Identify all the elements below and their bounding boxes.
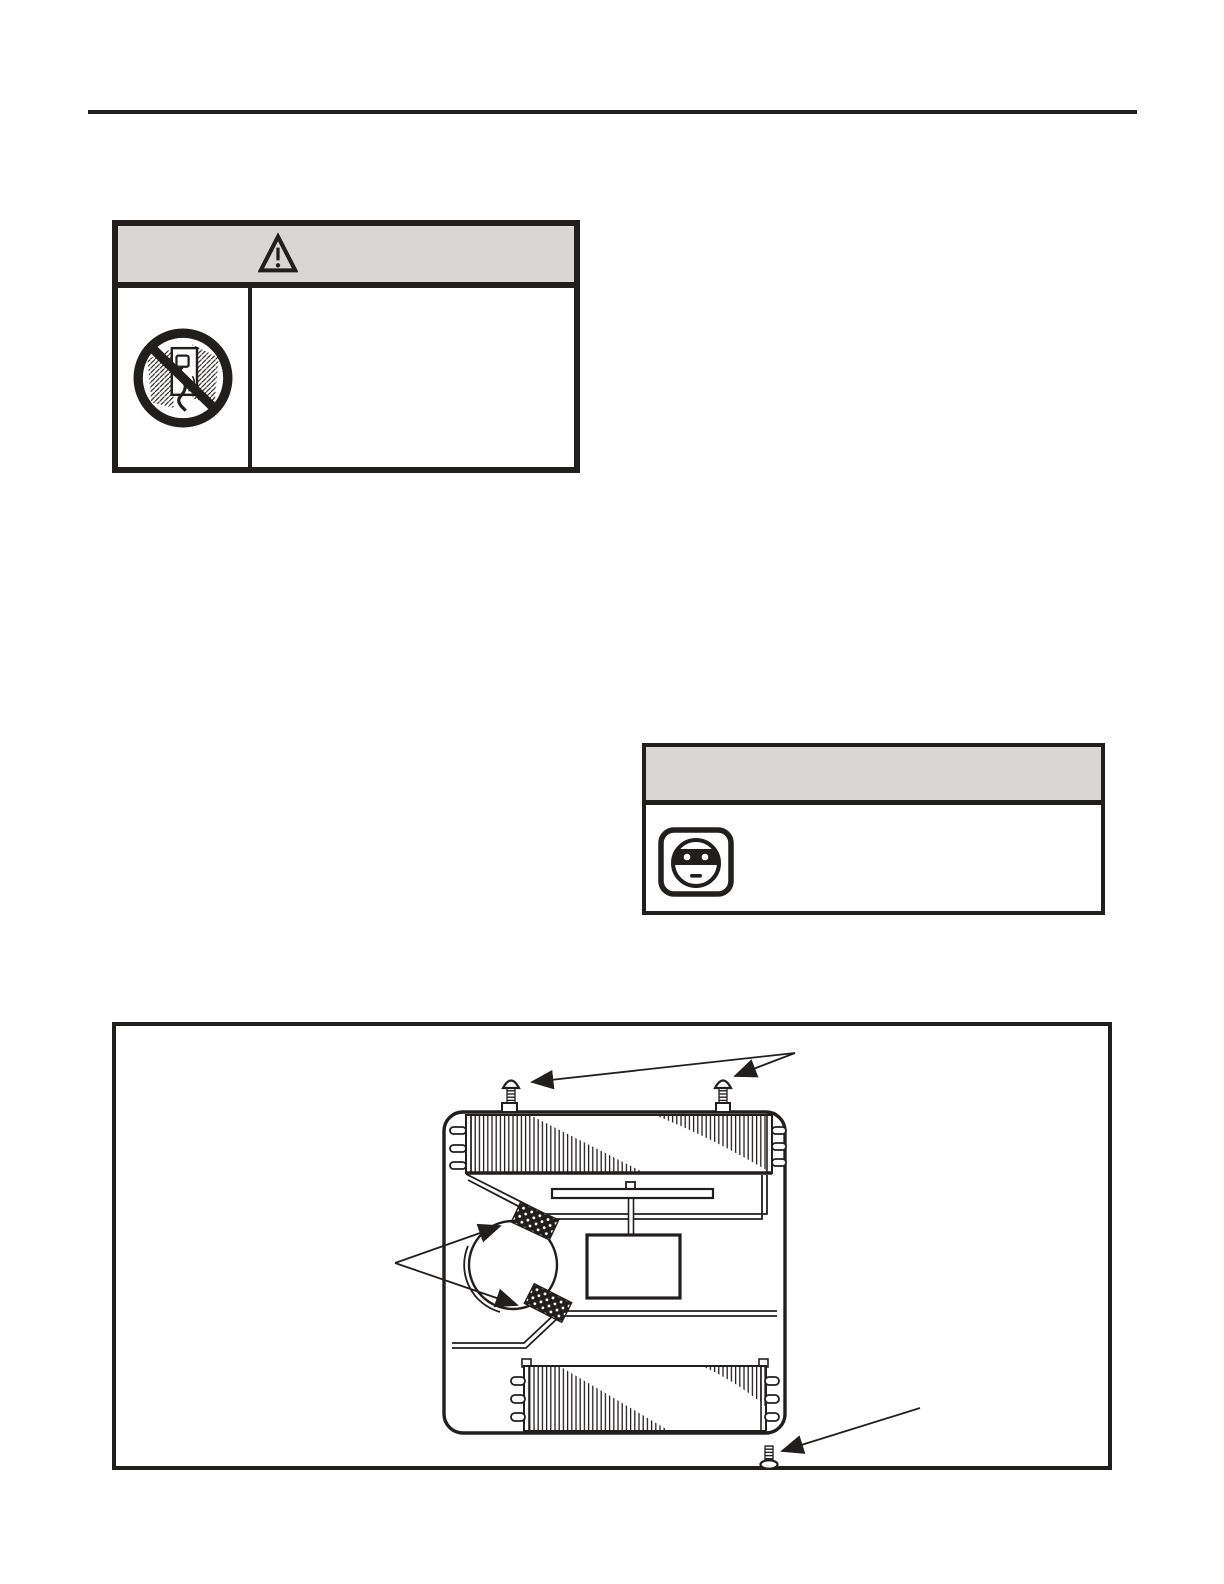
component-box xyxy=(587,1235,680,1298)
caution-panel xyxy=(642,743,1105,915)
no-pull-plug-icon xyxy=(127,322,239,434)
caution-panel-header xyxy=(646,747,1101,805)
warning-panel-header xyxy=(118,226,574,288)
figure-illustration xyxy=(112,1022,1112,1470)
condenser-coil xyxy=(450,1115,786,1173)
warning-panel xyxy=(112,220,580,473)
power-outlet-icon xyxy=(658,827,734,897)
warning-panel-body xyxy=(118,288,574,467)
support-bar xyxy=(552,1189,713,1198)
warning-pictogram-cell xyxy=(118,288,252,467)
document-page xyxy=(0,0,1224,1584)
warning-text-area xyxy=(252,288,574,467)
header-rule xyxy=(88,110,1137,114)
caution-panel-body xyxy=(646,805,1101,911)
figure-panel xyxy=(112,1022,1112,1470)
evaporator-coil xyxy=(511,1359,779,1431)
warning-triangle-icon xyxy=(258,231,298,277)
